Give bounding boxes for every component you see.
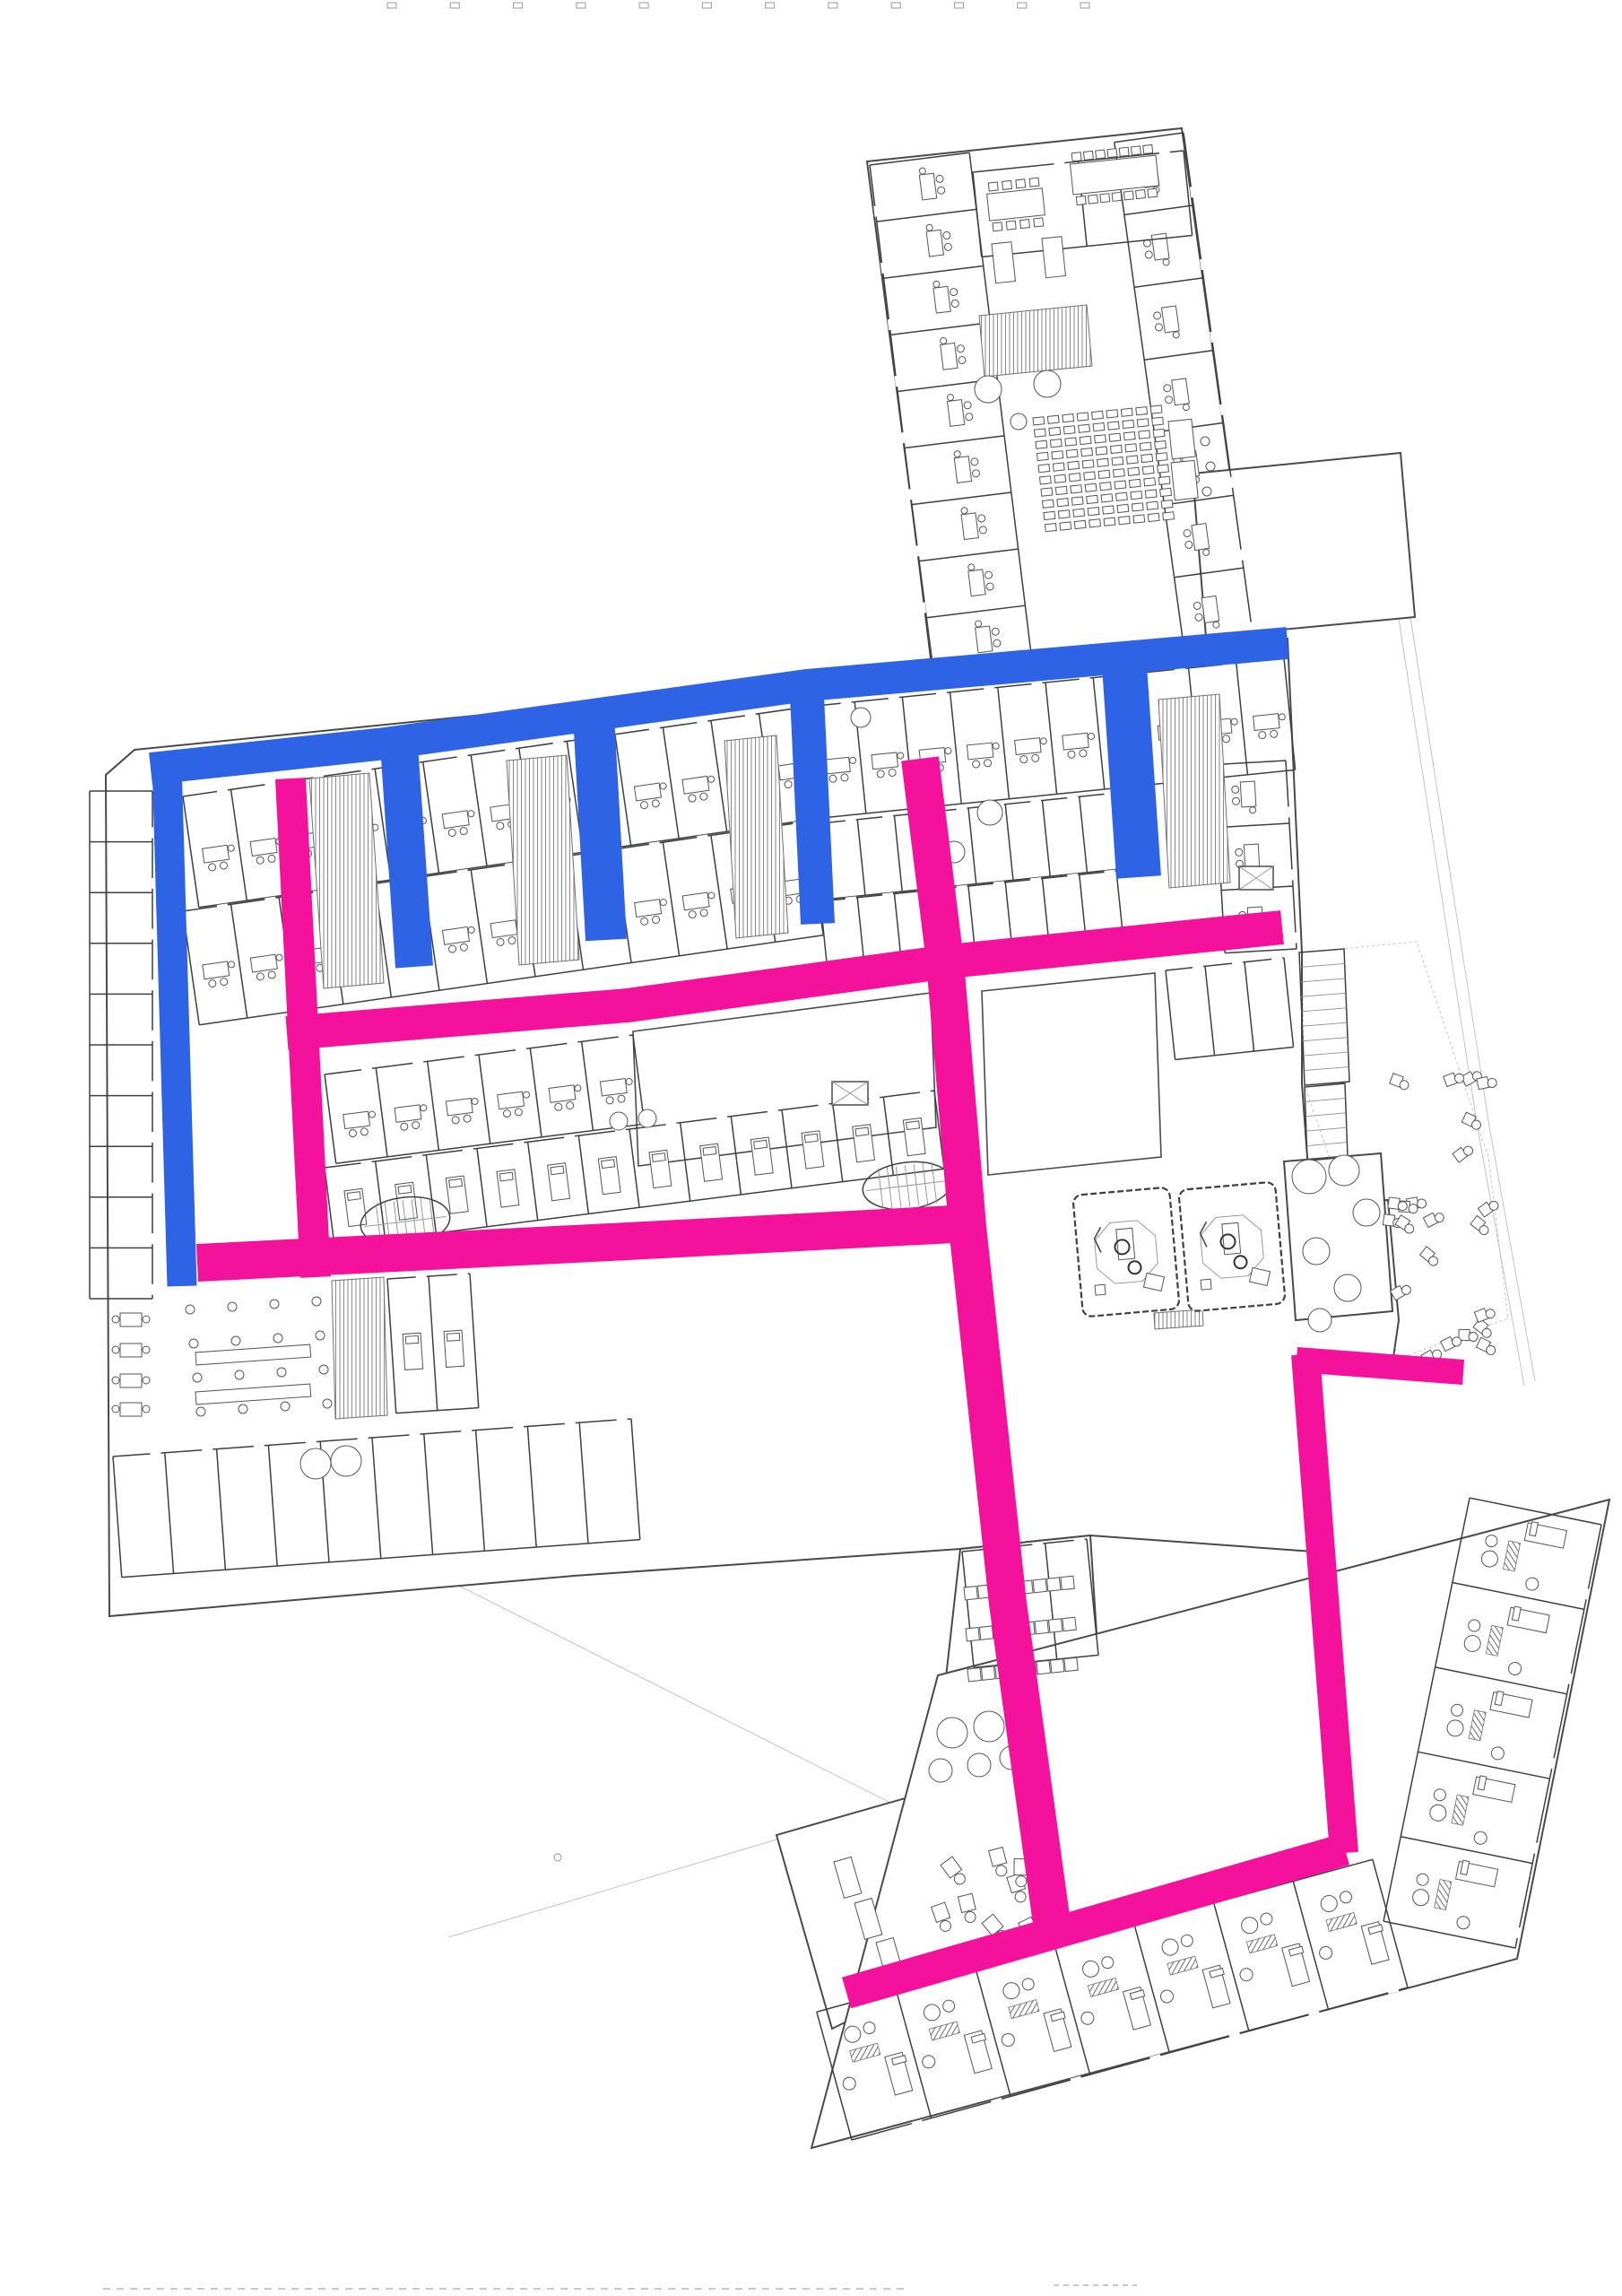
- blue-branch-3: [807, 696, 818, 924]
- fixture-circle: [937, 1718, 967, 1748]
- operating-room: [1178, 1182, 1285, 1312]
- fixture-circle: [638, 1109, 656, 1127]
- pink-right-spur: [1297, 1360, 1463, 1372]
- elevator: [1239, 866, 1273, 890]
- blue-branch-1: [398, 732, 414, 967]
- floor-plan-canvas: [0, 0, 1622, 2296]
- terrace-chairs: [1383, 1196, 1500, 1365]
- wing-hatch: [979, 305, 1092, 377]
- fixture-circle: [851, 708, 871, 727]
- floor-plan-screenshot: [0, 0, 1622, 2296]
- blue-left-vertical: [167, 761, 182, 1286]
- blue-branch-4: [1124, 665, 1139, 877]
- operating-room: [1072, 1187, 1179, 1318]
- fixture-circle: [974, 1711, 1004, 1742]
- top-wing: [867, 128, 1253, 679]
- fixture-circle: [1303, 1238, 1330, 1265]
- dining-hatch: [332, 1277, 387, 1419]
- lightwell-4: [1158, 694, 1230, 888]
- lightwell-3: [724, 735, 788, 938]
- fixture-circle: [1308, 1309, 1331, 1332]
- or-ruler: [1154, 1309, 1203, 1329]
- courtyard-east: [982, 973, 1161, 1175]
- fixture-circle: [1010, 413, 1027, 430]
- fixture-circle: [1334, 1274, 1361, 1301]
- lightwell-2: [507, 755, 579, 965]
- fixture-circle: [300, 1448, 331, 1479]
- fixture-circle: [1034, 370, 1061, 397]
- elevator: [832, 1082, 868, 1105]
- bed: [1042, 237, 1065, 278]
- blue-branch-2: [594, 716, 606, 940]
- east-stair-lower: [1305, 1083, 1348, 1161]
- ward-wing: [811, 1500, 1609, 2148]
- wing-east-annex: [1193, 453, 1415, 637]
- meeting-table: [985, 178, 1045, 231]
- fixture-circle: [331, 1446, 361, 1476]
- fixture-circle: [1353, 1199, 1380, 1226]
- fixture-circle: [610, 1112, 628, 1130]
- fixture-circle: [967, 1753, 991, 1777]
- fixture-circle: [977, 800, 1002, 825]
- east-stair-upper: [1299, 949, 1349, 1085]
- fixture-circle: [1292, 1160, 1326, 1194]
- fixture-circle: [1329, 1155, 1359, 1186]
- fixture-circle: [975, 376, 1002, 403]
- bed: [992, 242, 1015, 283]
- fixture-circle: [929, 1759, 952, 1782]
